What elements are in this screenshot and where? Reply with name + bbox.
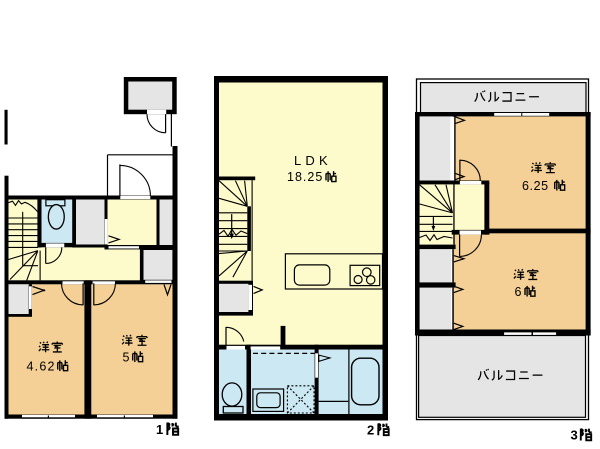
- svg-text:5: 5: [123, 351, 130, 365]
- svg-text:6: 6: [515, 285, 522, 299]
- svg-text:1: 1: [156, 422, 163, 437]
- svg-text:18.25: 18.25: [287, 170, 323, 184]
- svg-text:LDK: LDK: [294, 153, 332, 168]
- svg-text:3: 3: [571, 428, 578, 443]
- svg-text:6.25: 6.25: [522, 179, 549, 193]
- svg-text:2: 2: [367, 423, 374, 438]
- svg-text:4.62: 4.62: [27, 360, 56, 374]
